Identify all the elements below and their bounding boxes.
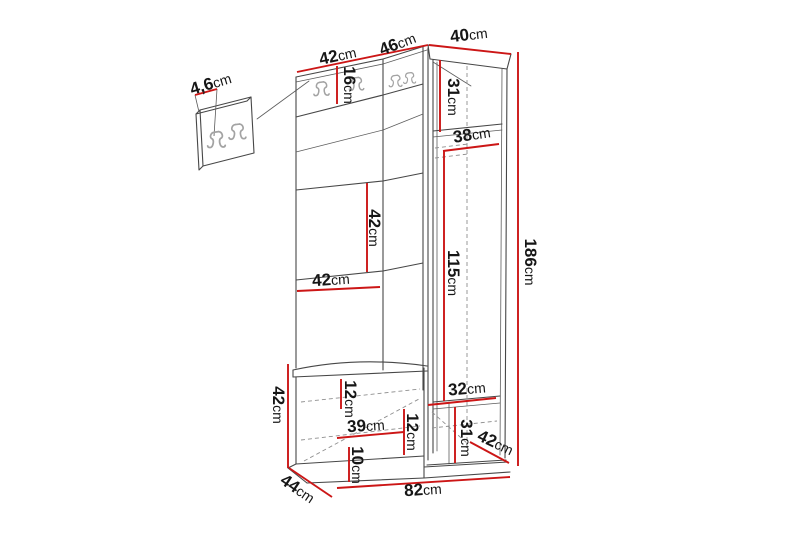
plinth-outline — [288, 464, 510, 483]
dimension-label: 16cm — [340, 66, 359, 104]
coat-hook-icon — [314, 82, 329, 96]
dimension-label: 42cm — [269, 386, 288, 424]
dimension-bench-depth: 44cm — [277, 468, 332, 508]
main-unit-outline — [296, 45, 428, 390]
dimension-bench-mid-section-height: 12cm — [403, 409, 422, 455]
dimension-hook-board-height: 16cm — [337, 66, 359, 104]
dimension-label: 31cm — [457, 419, 476, 457]
dimension-label: 4,6cm — [188, 69, 234, 100]
dimension-bench-top-section-height: 12cm — [341, 379, 360, 418]
coat-hooks — [314, 73, 416, 96]
dimension-total-height: 186cm — [518, 52, 540, 466]
dimension-bench-interior-width: 39cm — [337, 415, 404, 438]
dimension-wardrobe-top-depth: 38cm — [443, 123, 499, 151]
dimension-bench-height: 42cm — [269, 364, 288, 468]
dimension-label: 12cm — [403, 413, 422, 451]
dimension-top-width-middle: 46cm — [377, 28, 428, 59]
dimension-label: 82cm — [404, 479, 443, 501]
coat-hook-icon — [389, 75, 402, 87]
callout-line — [257, 81, 309, 119]
dimension-label: 10cm — [348, 446, 367, 484]
diagram-canvas: 4,6cm42cm46cm40cm16cm31cm38cm42cm42cm115… — [0, 0, 800, 533]
detail-hook-panel — [195, 89, 254, 170]
dimension-label: 38cm — [452, 123, 492, 148]
dimension-wardrobe-bottom-depth: 42cm — [470, 427, 516, 463]
dimension-label: 12cm — [341, 380, 360, 418]
dimension-wardrobe-bottom-section-height: 31cm — [455, 407, 476, 463]
dimension-label: 31cm — [444, 78, 463, 116]
dimension-label: 186cm — [521, 238, 540, 285]
dimension-line — [443, 144, 499, 151]
dimension-wardrobe-bottom-width: 32cm — [428, 378, 496, 405]
dimension-label: 42cm — [312, 269, 351, 291]
furniture-dimension-drawing: 4,6cm42cm46cm40cm16cm31cm38cm42cm42cm115… — [0, 0, 800, 533]
dimension-label: 115cm — [444, 250, 463, 296]
dimension-label: 42cm — [365, 209, 384, 247]
dimension-wardrobe-top-section-height: 31cm — [440, 60, 463, 132]
dimension-shelf-section-height: 42cm — [365, 183, 384, 272]
coat-hook-icon — [404, 73, 416, 84]
dimension-line — [297, 287, 380, 291]
dimension-label: 44cm — [277, 471, 319, 508]
dimension-label: 40cm — [449, 23, 489, 46]
dimension-panel-thickness: 4,6cm — [188, 69, 234, 100]
dimension-annotations: 4,6cm42cm46cm40cm16cm31cm38cm42cm42cm115… — [188, 23, 540, 507]
dimension-wardrobe-interior-height: 115cm — [444, 151, 463, 401]
dimension-label: 32cm — [447, 378, 486, 400]
dimension-bench-bottom-section-height: 10cm — [348, 446, 367, 484]
